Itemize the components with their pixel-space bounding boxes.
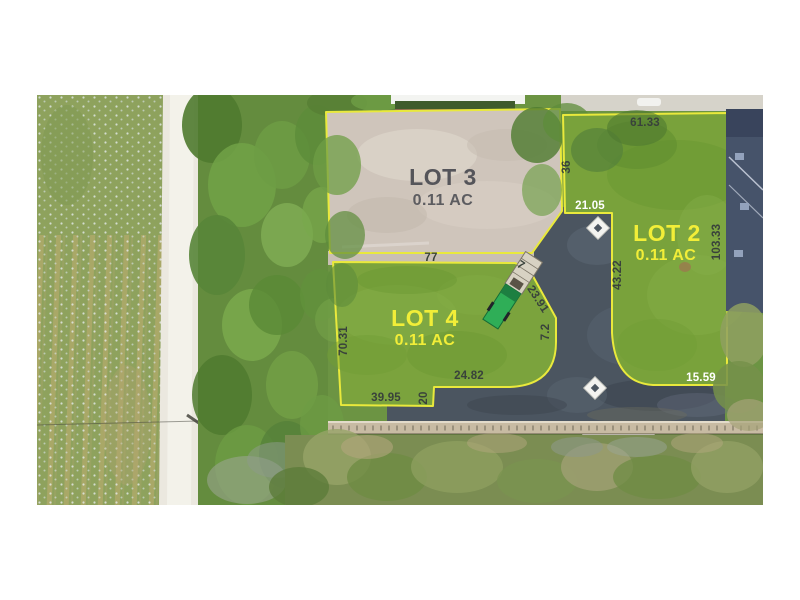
listing-image-page: LOT 3 0.11 AC LOT 2 0.11 AC LOT 4 0.11 A… (0, 0, 800, 600)
house-roof (726, 109, 763, 313)
lot-2-name: LOT 2 (633, 220, 701, 246)
lot-3-label: LOT 3 0.11 AC (409, 164, 477, 209)
aerial-photo-svg: LOT 3 0.11 AC LOT 2 0.11 AC LOT 4 0.11 A… (37, 95, 763, 505)
hedge (395, 101, 515, 110)
dim-20: 20 (418, 391, 430, 404)
building-roof (391, 95, 525, 111)
dim-21-05: 21.05 (575, 200, 605, 212)
lot-2-area: 0.11 AC (636, 247, 697, 264)
gravel-road (159, 95, 201, 505)
lot-4-name: LOT 4 (391, 305, 459, 331)
dim-15-59: 15.59 (686, 372, 716, 384)
dim-70-31: 70.31 (338, 326, 350, 356)
scrub-band (269, 429, 763, 505)
dim-7-2: 7.2 (540, 324, 552, 341)
dim-36: 36 (561, 160, 573, 173)
dim-39-95: 39.95 (371, 392, 401, 404)
aerial-photo: LOT 3 0.11 AC LOT 2 0.11 AC LOT 4 0.11 A… (37, 95, 763, 505)
dim-43-22: 43.22 (612, 260, 624, 290)
lot-3-name: LOT 3 (409, 164, 477, 190)
concrete-pad (561, 95, 763, 111)
lot-2-label: LOT 2 0.11 AC (633, 220, 701, 264)
dim-77: 77 (424, 252, 437, 264)
field (37, 95, 164, 505)
dim-103-33: 103.33 (711, 224, 723, 260)
lot-3-area: 0.11 AC (413, 192, 474, 209)
lot-4-label: LOT 4 0.11 AC (391, 305, 459, 349)
dim-61-33: 61.33 (630, 117, 660, 129)
dim-24-82: 24.82 (454, 370, 484, 382)
lot-4-area: 0.11 AC (395, 332, 456, 349)
